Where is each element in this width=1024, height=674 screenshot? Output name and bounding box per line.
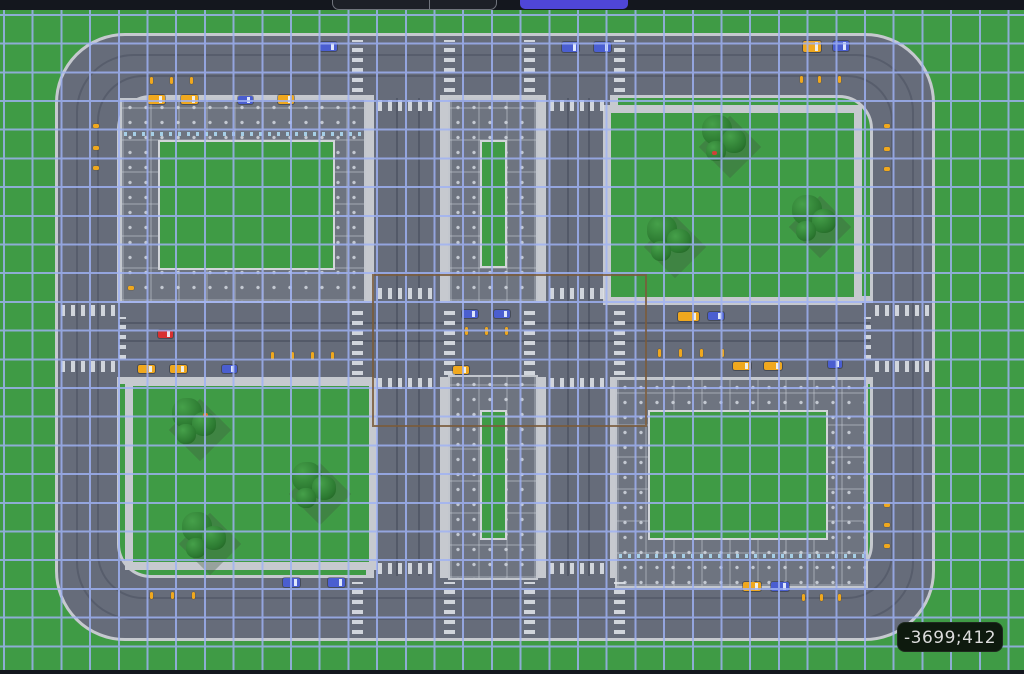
vehicle-truck-blue[interactable] [833, 41, 849, 51]
crosswalk [524, 40, 535, 92]
vehicle-taxi-yellow[interactable] [733, 362, 751, 370]
vehicle-truck-blue[interactable] [594, 42, 611, 52]
bottom-edge-bar [0, 670, 1024, 674]
vehicle-car-yellow[interactable] [803, 41, 821, 52]
bicycle-marker [838, 76, 841, 83]
bicycle-marker [802, 594, 805, 601]
bicycle-marker [171, 592, 174, 599]
bicycle-marker [884, 167, 890, 171]
pill-divider [429, 0, 430, 9]
selection-rectangle [372, 274, 647, 427]
crosswalk [875, 305, 929, 316]
bicycle-marker [818, 76, 821, 83]
bicycle-marker [800, 76, 803, 83]
vehicle-bus-yellow[interactable] [678, 312, 699, 321]
ground-item [712, 151, 717, 155]
crosswalk [378, 100, 436, 111]
tree-cluster [290, 462, 350, 522]
vehicle-car-blue[interactable] [328, 578, 345, 587]
bicycle-marker [190, 77, 193, 84]
bicycle-marker [93, 124, 99, 128]
tree-canopy [796, 221, 816, 241]
bicycle-marker [838, 594, 841, 601]
map-viewport[interactable]: -3699;412 [0, 10, 1024, 670]
tree-cluster [645, 215, 705, 275]
crosswalk [614, 582, 625, 634]
bicycle-marker [170, 77, 173, 84]
bicycle-marker [884, 147, 890, 151]
vehicle-truck-blue[interactable] [562, 42, 579, 52]
crosswalk [352, 305, 363, 375]
vehicle-taxi-yellow[interactable] [764, 362, 782, 370]
vehicle-car-blue[interactable] [708, 312, 724, 320]
crosswalk [550, 100, 606, 111]
bicycle-marker [700, 349, 703, 357]
app-window: -3699;412 [0, 0, 1024, 674]
crosswalk [444, 582, 455, 634]
crosswalk [119, 317, 126, 359]
topbar-primary-button[interactable] [520, 0, 628, 9]
vehicle-car-blue[interactable] [283, 578, 300, 587]
tree-cluster [700, 115, 760, 175]
vehicle-car-blue[interactable] [238, 96, 253, 104]
bicycle-marker [150, 592, 153, 599]
crosswalk [61, 305, 115, 316]
crosswalk [352, 582, 363, 634]
vehicle-taxi-yellow[interactable] [170, 365, 187, 373]
crosswalk [864, 317, 871, 359]
crosswalk [378, 563, 436, 574]
tree-canopy [296, 488, 316, 508]
bicycle-marker [93, 166, 99, 170]
bicycle-marker [331, 352, 334, 360]
bicycle-marker [658, 349, 661, 357]
vehicle-taxi-yellow[interactable] [278, 95, 294, 104]
topbar-address-pill[interactable] [332, 0, 497, 10]
tree-canopy [176, 424, 196, 444]
vehicle-car-red[interactable] [158, 330, 173, 338]
browser-top-bar [0, 0, 1024, 10]
vehicle-taxi-yellow[interactable] [148, 95, 165, 104]
tree-cluster [180, 512, 240, 572]
bicycle-marker [291, 352, 294, 360]
vehicle-car-blue[interactable] [320, 42, 337, 51]
vehicle-car-blue[interactable] [828, 360, 842, 368]
vehicle-taxi-yellow[interactable] [138, 365, 155, 373]
vehicle-car-blue[interactable] [222, 365, 237, 373]
bicycle-marker [93, 146, 99, 150]
bicycle-marker [679, 349, 682, 357]
bicycle-marker [192, 592, 195, 599]
crosswalk [444, 40, 455, 92]
bicycle-marker [884, 544, 890, 548]
tree-canopy [651, 241, 671, 261]
bicycle-marker [128, 286, 134, 290]
tree-canopy [186, 538, 206, 558]
bicycle-marker [820, 594, 823, 601]
bicycle-marker [150, 77, 153, 84]
bicycle-marker [884, 523, 890, 527]
crosswalk [61, 361, 115, 372]
vehicle-taxi-yellow[interactable] [181, 95, 198, 104]
crosswalk [550, 563, 606, 574]
bicycle-marker [311, 352, 314, 360]
vehicle-car-blue[interactable] [771, 582, 789, 591]
vehicle-taxi-yellow[interactable] [743, 582, 761, 591]
bicycle-marker [271, 352, 274, 360]
bicycle-marker [884, 124, 890, 128]
tree-cluster [790, 195, 850, 255]
crosswalk [524, 582, 535, 634]
crosswalk [875, 361, 929, 372]
crosswalk [614, 40, 625, 92]
ground-item [203, 413, 208, 417]
cursor-coordinates: -3699;412 [897, 622, 1003, 652]
crosswalk [352, 40, 363, 92]
bicycle-marker [884, 503, 890, 507]
bicycle-marker [721, 349, 724, 357]
tree-cluster [170, 398, 230, 458]
